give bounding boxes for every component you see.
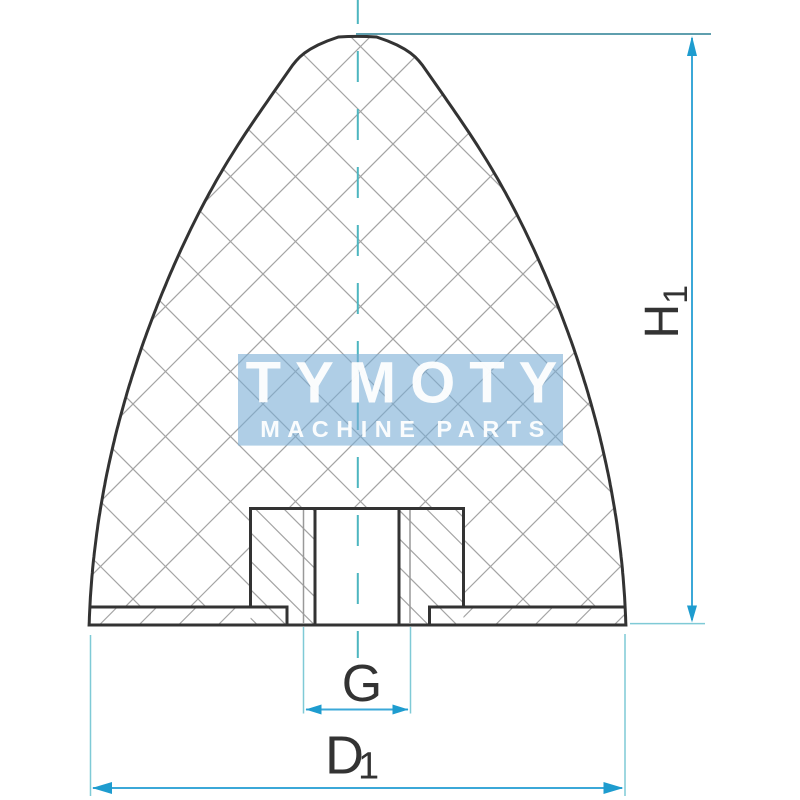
svg-text:TYMOTY: TYMOTY: [246, 351, 572, 416]
svg-text:G: G: [342, 655, 382, 713]
svg-text:MACHINE PARTS: MACHINE PARTS: [260, 416, 552, 442]
